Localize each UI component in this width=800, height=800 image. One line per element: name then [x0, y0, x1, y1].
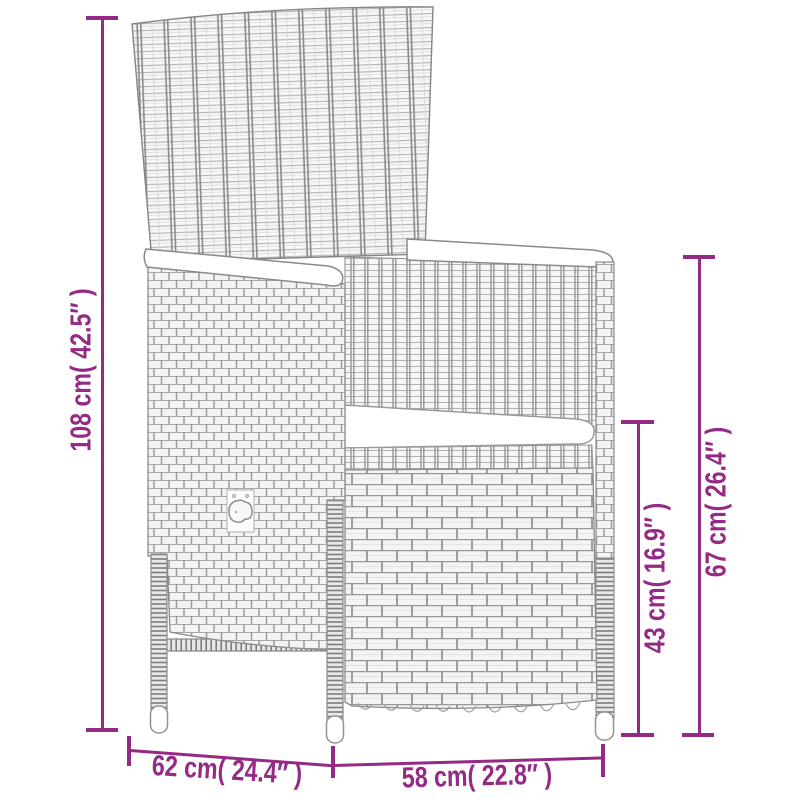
chair-illustration: [0, 0, 800, 800]
side-logo-plate: [227, 490, 254, 532]
dimension-diagram: 108 cm( 42.5″ ) 67 cm( 26.4″ ) 43 cm( 16…: [0, 0, 800, 800]
